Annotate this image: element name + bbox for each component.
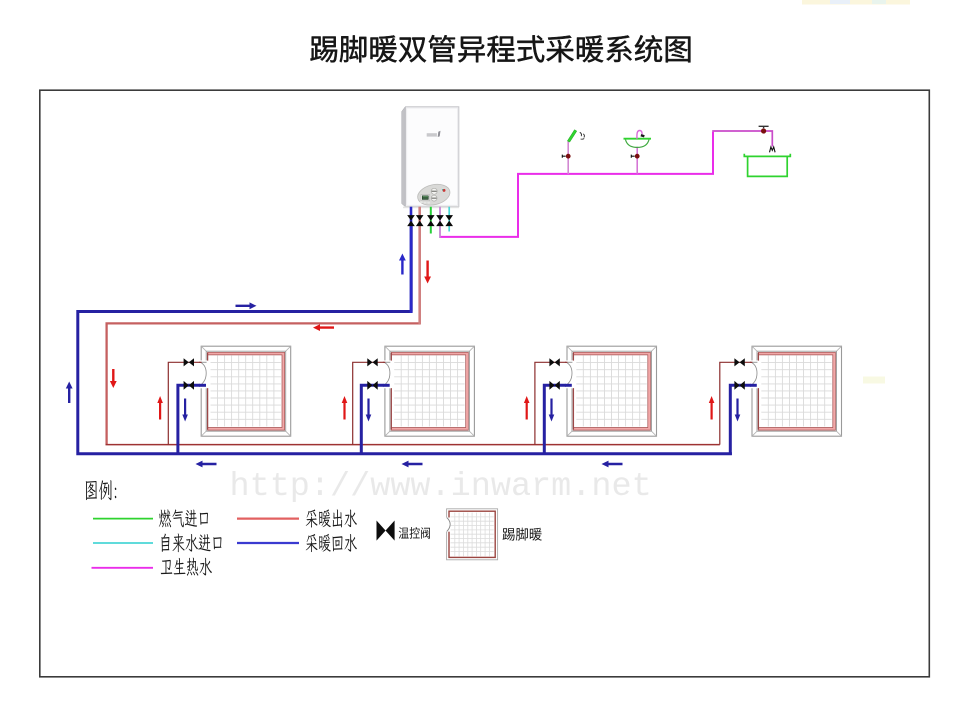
svg-text:http://www.inwarm.net: http://www.inwarm.net <box>230 468 652 506</box>
